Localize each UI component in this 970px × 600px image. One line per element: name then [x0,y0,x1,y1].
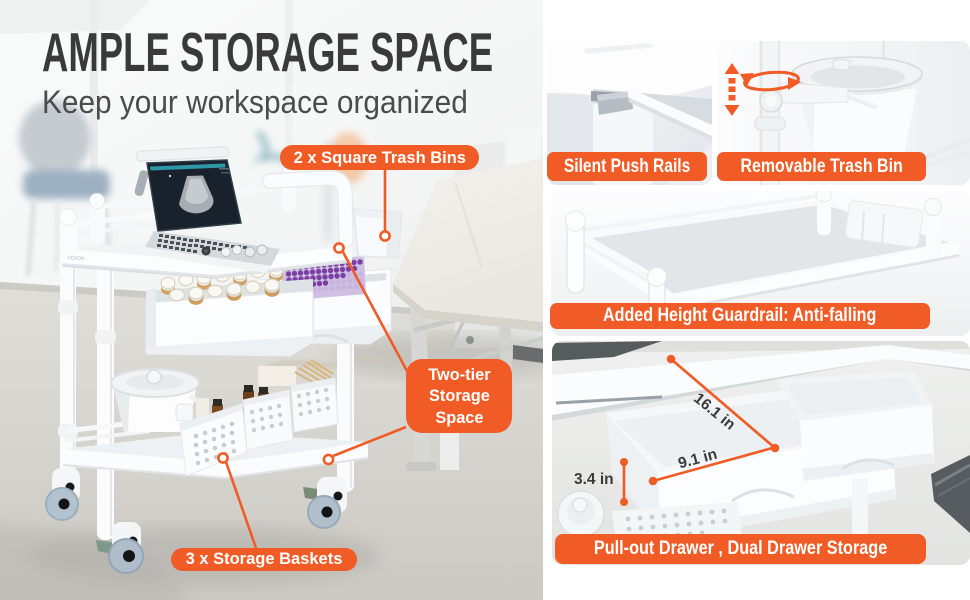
svg-text:3.4 in: 3.4 in [574,471,614,488]
svg-text:VEVOR: VEVOR [67,255,85,262]
